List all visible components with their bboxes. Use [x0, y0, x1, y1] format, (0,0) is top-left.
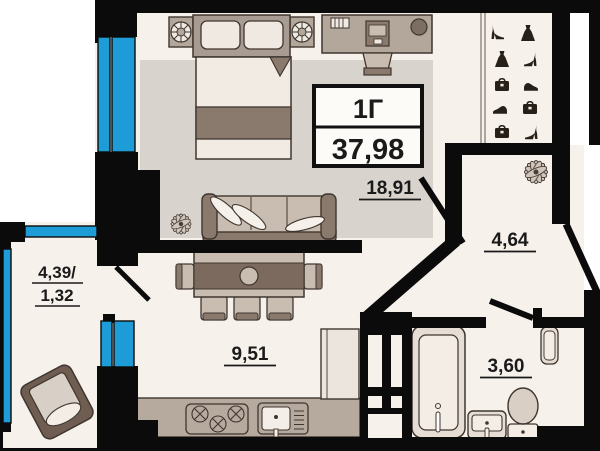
floor-plan-page: 1Г 37,98 18,91 4,64 9,51 3,60 4,39/ 1,32	[0, 0, 600, 451]
bathroom-area-label: 3,60	[488, 356, 525, 377]
desk	[322, 15, 432, 53]
kitchen-window-outer-pane	[101, 321, 112, 367]
kitchen-window-inner-pane	[114, 321, 134, 367]
kitchen-sink	[258, 403, 308, 437]
wall-top	[95, 0, 600, 13]
wall-living-south	[137, 240, 362, 253]
keyboard-icon	[331, 18, 349, 28]
sofa-armrest	[321, 194, 336, 239]
wall-closet-bottom	[457, 143, 557, 155]
wall-kitchen-west-upper	[97, 240, 138, 266]
wall-bottom-right-step	[537, 426, 600, 451]
dining-chair	[267, 296, 293, 320]
wall-bottom	[97, 437, 600, 451]
sofa	[202, 193, 336, 241]
dining-chair	[201, 296, 227, 320]
bathtub	[412, 326, 465, 438]
desk-lamp-icon	[411, 19, 427, 35]
pillow	[201, 21, 240, 49]
balcony-glazing-top	[25, 226, 97, 237]
pillow	[244, 21, 283, 49]
hall-area-label: 4,64	[492, 230, 529, 251]
wall-bath-top-right	[533, 317, 585, 328]
balcony-area-label-line1: 4,39/	[38, 263, 76, 282]
living-window-inner-pane	[112, 37, 135, 152]
monitor-icon	[366, 21, 389, 46]
wall-closet-right	[552, 0, 570, 224]
towel-radiator	[541, 327, 558, 364]
living-window-outer-pane	[98, 37, 110, 152]
living-area-label: 18,91	[366, 178, 414, 199]
bathroom-sink	[468, 411, 506, 439]
balcony-area-label-line2: 1,32	[40, 286, 73, 305]
balcony-glazing-left	[3, 249, 11, 423]
table-plate	[240, 267, 258, 285]
wall-west-pillar	[95, 170, 160, 240]
fridge	[321, 329, 359, 399]
toilet	[508, 388, 538, 439]
total-area-label: 37,98	[332, 134, 405, 166]
unit-type-label: 1Г	[353, 94, 383, 124]
dining-chair	[234, 296, 260, 320]
office-chair	[363, 53, 392, 75]
balcony-corner	[0, 222, 25, 242]
wall-bath-top-left	[404, 317, 486, 328]
wall-west-below-window	[95, 152, 138, 170]
wall-right-outer	[589, 0, 600, 145]
kitchen-area-label: 9,51	[232, 344, 269, 365]
exterior-niche-top	[570, 13, 589, 145]
nightstand-right	[290, 17, 314, 47]
nightstand-left	[169, 17, 193, 47]
floor-plan: 1Г 37,98 18,91 4,64 9,51 3,60 4,39/ 1,32	[0, 0, 600, 451]
plant-icon-hall	[524, 160, 548, 184]
double-bed	[193, 15, 291, 159]
wall-bottom-left-step	[97, 420, 158, 451]
blanket	[196, 107, 291, 139]
unit-label-box: 1Г 37,98	[314, 86, 422, 166]
plant-icon-living	[171, 214, 192, 235]
